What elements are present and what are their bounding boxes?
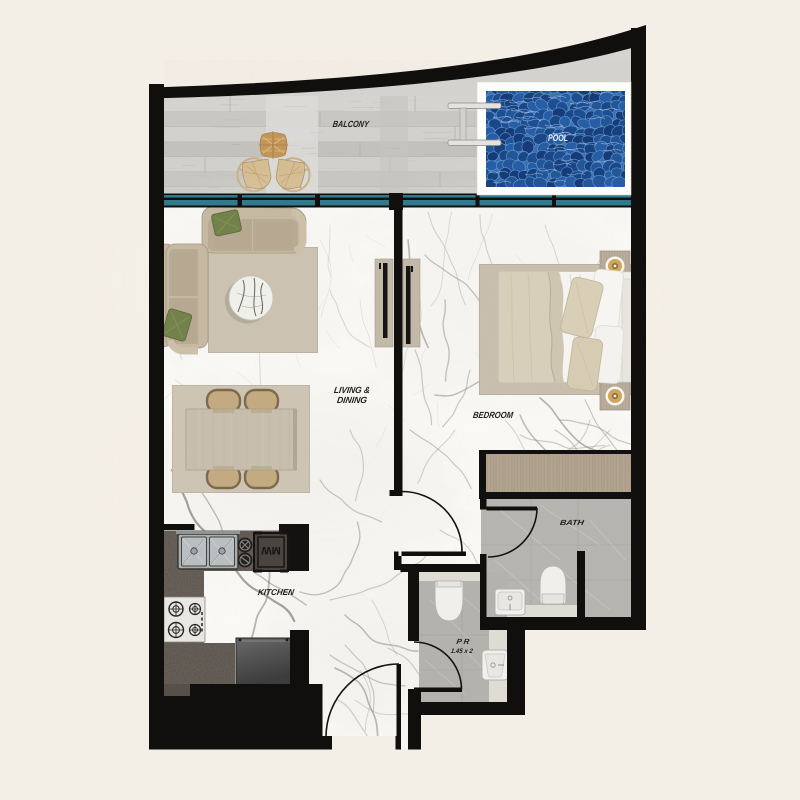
- svg-text:P R: P R: [456, 637, 471, 646]
- svg-text:KITCHEN: KITCHEN: [257, 587, 295, 597]
- svg-text:BEDROOM: BEDROOM: [472, 410, 514, 420]
- svg-text:MW: MW: [261, 544, 281, 556]
- svg-text:DINING: DINING: [336, 395, 367, 405]
- svg-text:BALCONY: BALCONY: [332, 119, 370, 129]
- svg-text:POOL: POOL: [548, 133, 568, 143]
- svg-text:1.45 x 2: 1.45 x 2: [450, 648, 473, 655]
- svg-text:BATH: BATH: [559, 518, 585, 527]
- svg-text:LIVING &: LIVING &: [333, 385, 370, 395]
